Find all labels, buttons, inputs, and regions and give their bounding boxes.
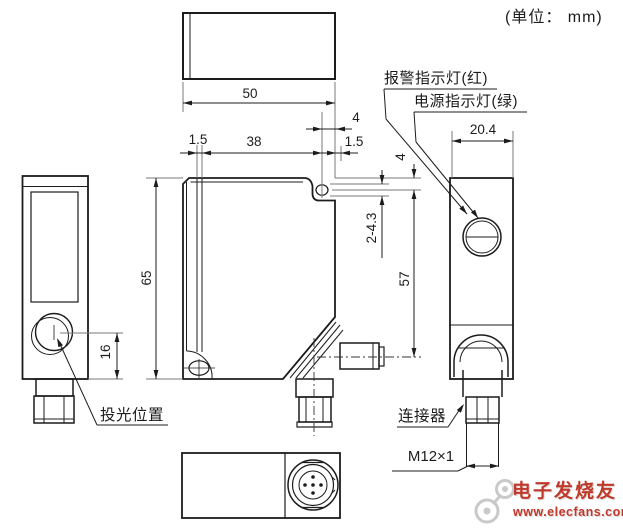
front-window — [31, 192, 78, 302]
watermark-url: www.elecfans.com — [513, 505, 623, 519]
dim-edge-offset-left: 1.5 — [189, 132, 208, 148]
dim-edge-offset-right: 1.5 — [345, 134, 364, 150]
sensor-dimension-drawing: (单位： mm) 报警指示灯(红) 电源指示灯(绿) 投光位置 连接器 50 1… — [0, 0, 623, 532]
front-connector-right — [340, 343, 384, 369]
dimension-lines — [117, 103, 513, 471]
label-emitter-position: 投光位置 — [100, 407, 164, 425]
elecfans-logo — [476, 481, 514, 523]
left-connector-down — [34, 379, 74, 423]
dim-body-width: 50 — [242, 86, 257, 102]
right-connector-elbow — [454, 335, 508, 467]
dim-hole-to-edge: 4 — [352, 110, 360, 126]
unit-note: (单位： mm) — [505, 9, 603, 27]
front-view — [183, 178, 384, 427]
dim-mounting-holes: 2-4.3 — [364, 213, 380, 244]
dim-hole-top-offset: 4 — [393, 153, 409, 161]
bottom-connector-socket — [288, 460, 338, 510]
label-connector: 连接器 — [398, 408, 446, 426]
bottom-view — [182, 453, 340, 518]
label-power-indicator: 电源指示灯(绿) — [414, 93, 518, 110]
drawing-linework — [0, 0, 623, 532]
extension-lines — [60, 82, 513, 379]
dim-hole-to-connector: 57 — [397, 271, 413, 286]
dim-thread: M12×1 — [408, 448, 454, 465]
dim-lens-center-height: 16 — [98, 344, 114, 359]
dim-body-height: 65 — [139, 270, 155, 285]
dim-window-width: 38 — [246, 134, 261, 150]
dim-side-width: 20.4 — [470, 122, 496, 138]
right-side-view — [450, 178, 513, 467]
top-view — [183, 13, 335, 79]
left-side-view — [23, 176, 89, 423]
watermark-brand: 电子发烧友 — [512, 481, 617, 503]
front-connector-down — [296, 379, 333, 427]
label-alarm-indicator: 报警指示灯(红) — [384, 70, 488, 87]
